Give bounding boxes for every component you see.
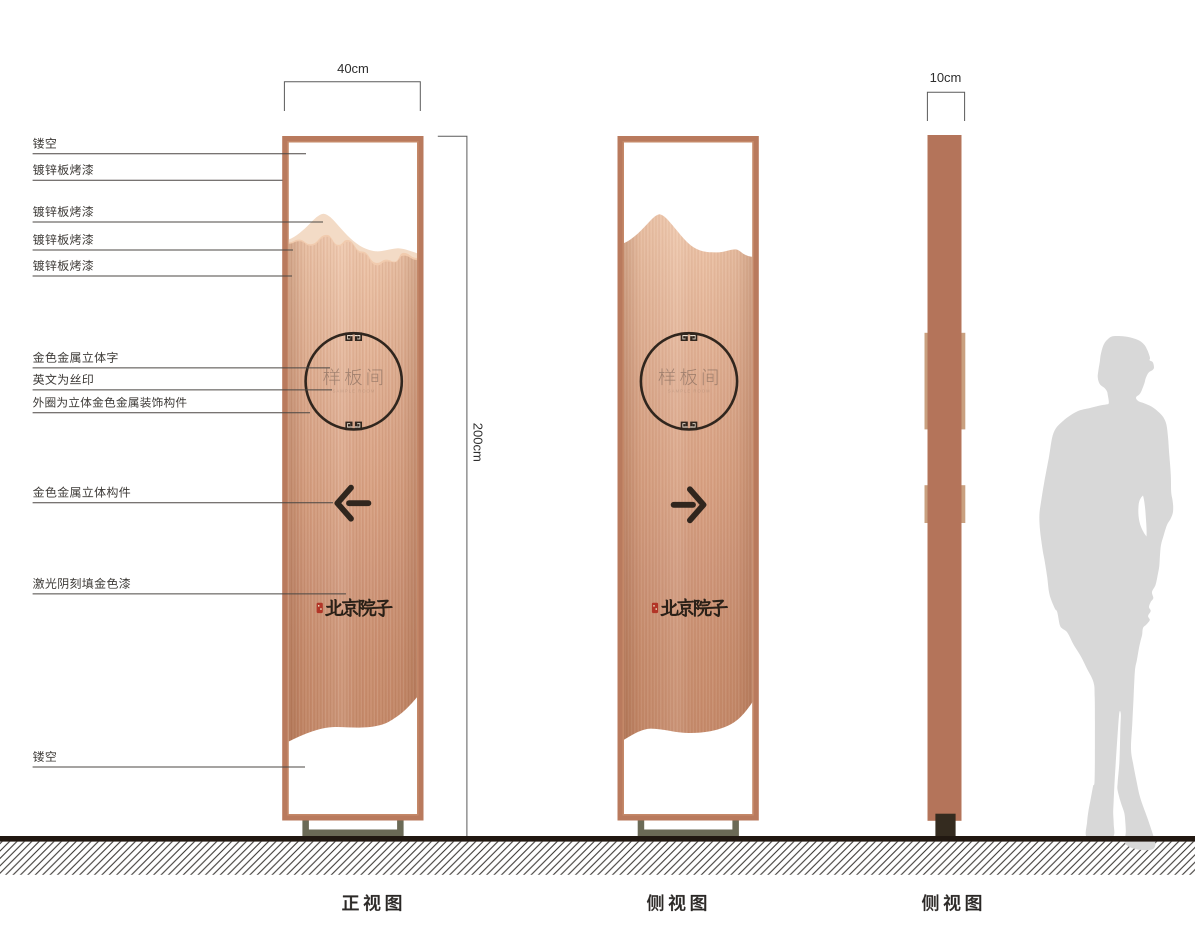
- svg-text:200cm: 200cm: [471, 423, 486, 462]
- svg-text:10cm: 10cm: [930, 70, 962, 85]
- svg-text:SAMPLE ROOM: SAMPLE ROOM: [333, 388, 376, 393]
- svg-text:40cm: 40cm: [337, 61, 369, 76]
- svg-text:SAMPLE ROOM: SAMPLE ROOM: [668, 388, 711, 393]
